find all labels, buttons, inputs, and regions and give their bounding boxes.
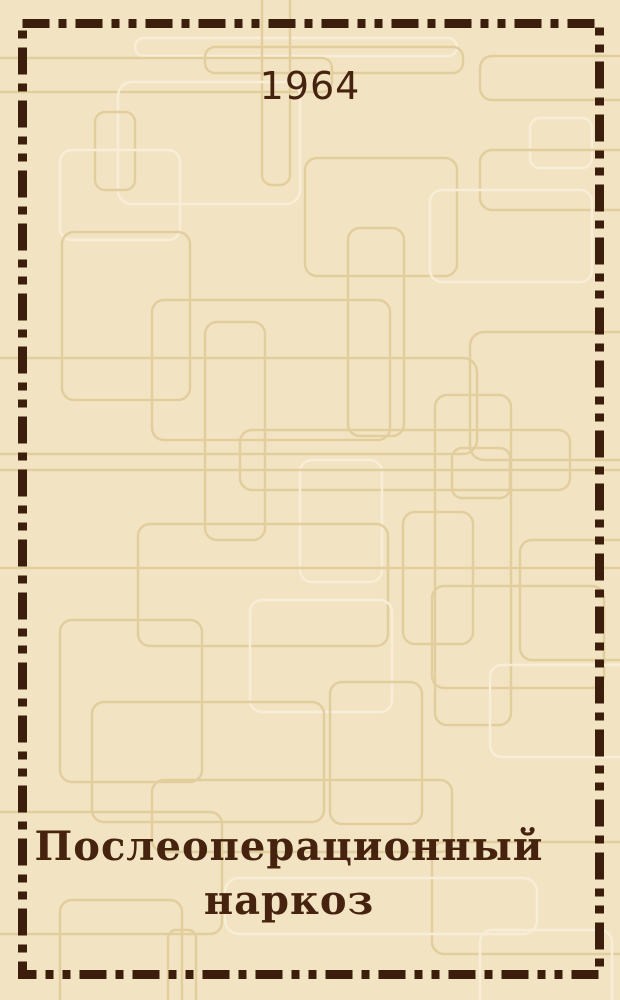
title-line-1: Послеоперационный — [0, 820, 578, 874]
book-title: Послеоперационный наркоз — [0, 820, 578, 928]
title-line-2: наркоз — [0, 874, 578, 928]
year-label: 1964 — [0, 66, 620, 106]
book-cover: 1964 Послеоперационный наркоз — [0, 0, 620, 1000]
